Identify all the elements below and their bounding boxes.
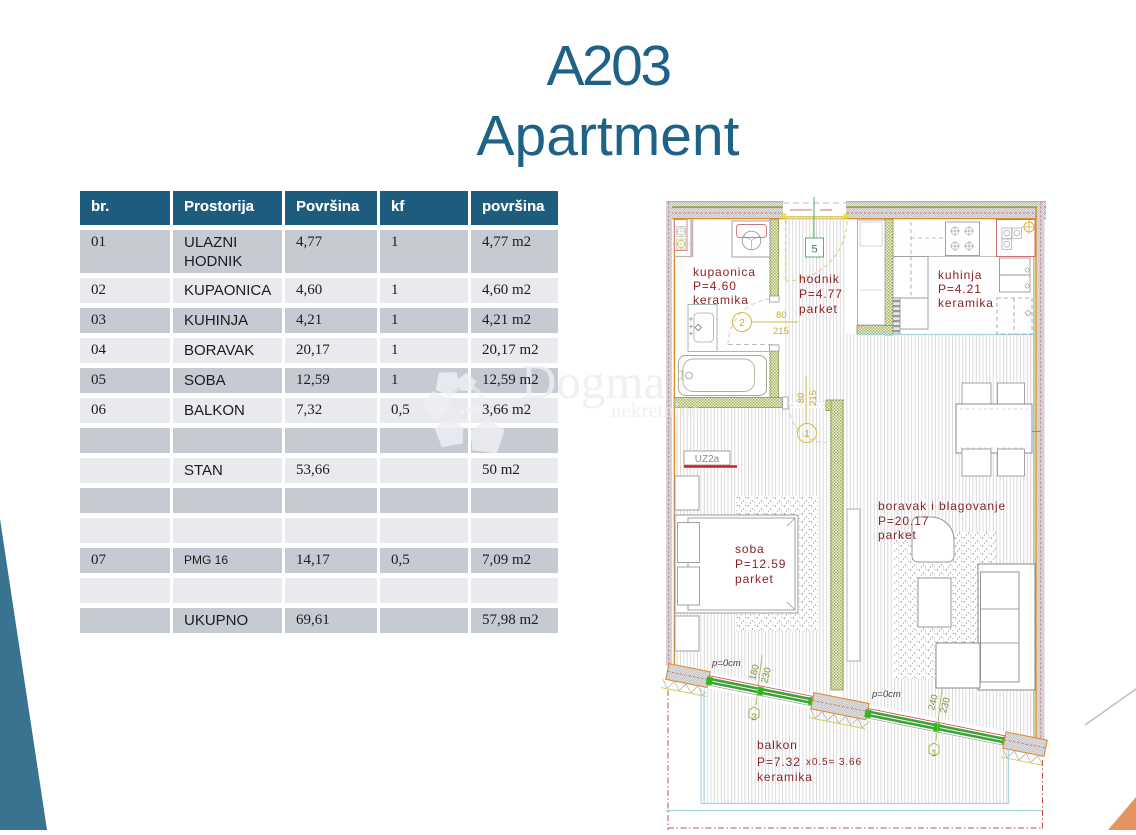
svg-text:p=0cm: p=0cm: [871, 689, 901, 700]
svg-text:p=0cm: p=0cm: [711, 658, 741, 669]
svg-text:keramika: keramika: [757, 770, 813, 784]
svg-text:x0.5= 3.66: x0.5= 3.66: [806, 757, 862, 768]
svg-text:kupaonica: kupaonica: [693, 265, 756, 279]
svg-text:balkon: balkon: [757, 738, 798, 752]
svg-text:1: 1: [804, 429, 810, 440]
svg-text:1: 1: [931, 748, 936, 759]
svg-text:80: 80: [796, 393, 807, 404]
svg-text:soba: soba: [735, 542, 765, 556]
svg-text:UZ2a: UZ2a: [695, 454, 720, 465]
svg-text:P=4.77: P=4.77: [799, 287, 843, 301]
svg-text:P=12.59: P=12.59: [735, 557, 786, 571]
svg-text:parket: parket: [878, 528, 917, 542]
svg-text:parket: parket: [735, 572, 774, 586]
svg-text:P=4.21: P=4.21: [938, 282, 982, 296]
svg-text:215: 215: [773, 326, 789, 337]
svg-text:kuhinja: kuhinja: [938, 268, 982, 282]
svg-text:P=20.17: P=20.17: [878, 514, 929, 528]
svg-text:80: 80: [776, 310, 787, 321]
svg-text:2: 2: [739, 318, 745, 329]
svg-text:P=4.60: P=4.60: [693, 279, 737, 293]
svg-text:P=7.32: P=7.32: [757, 755, 801, 769]
svg-text:5: 5: [811, 244, 817, 256]
svg-text:boravak i blagovanje: boravak i blagovanje: [878, 499, 1006, 513]
svg-text:hodnik: hodnik: [799, 272, 840, 286]
svg-text:parket: parket: [799, 302, 838, 316]
svg-text:2: 2: [751, 712, 756, 723]
svg-text:215: 215: [808, 390, 819, 406]
svg-text:keramika: keramika: [938, 296, 994, 310]
svg-text:keramika: keramika: [693, 293, 749, 307]
